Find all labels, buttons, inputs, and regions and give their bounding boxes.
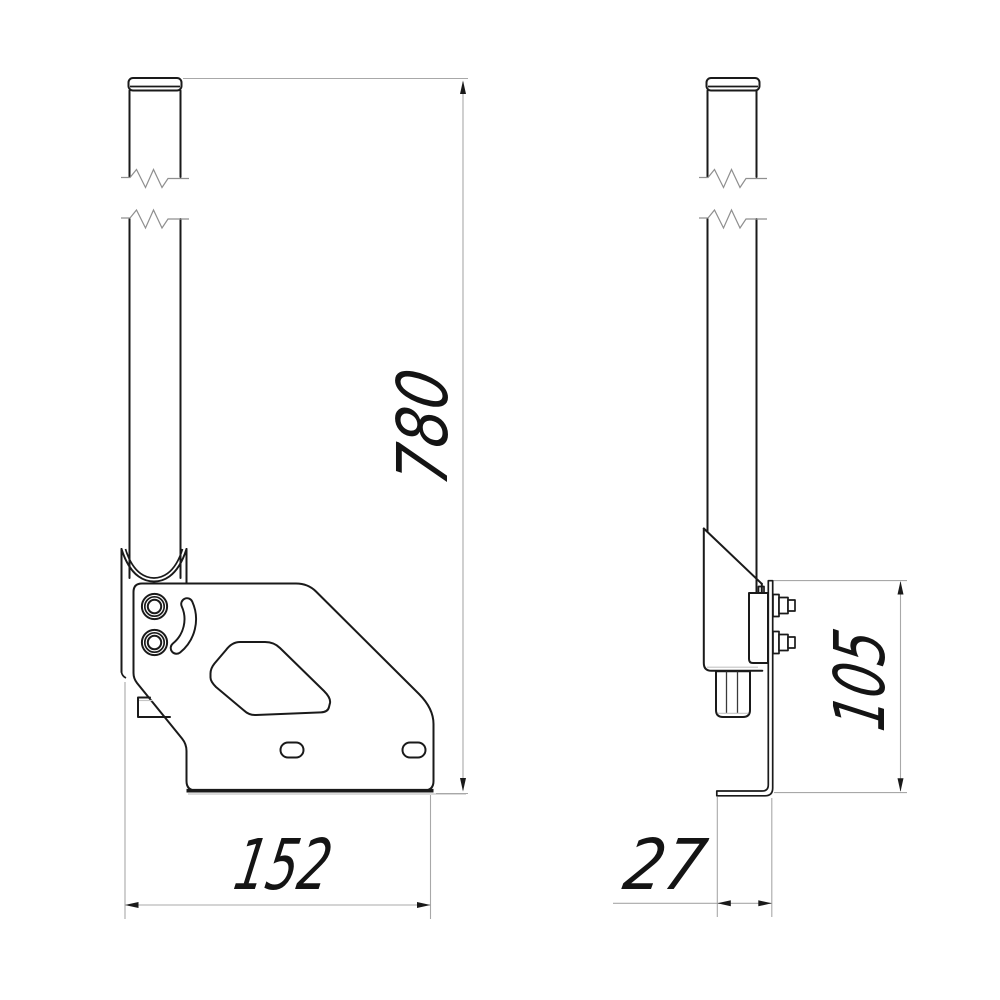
bolt-shaft-end <box>788 600 795 611</box>
arrow-left <box>717 900 731 906</box>
dimension-value-mast-height: 780 <box>382 363 463 490</box>
gusset-diagonal-edge <box>704 529 762 584</box>
bolt-shaft-end <box>788 637 795 648</box>
bolt-nut <box>779 598 788 614</box>
side-pole-break-lines <box>699 170 767 229</box>
side-pole-cap <box>707 78 760 91</box>
dimension-value-flange-depth: 27 <box>618 824 712 905</box>
bolt-washer <box>773 595 779 617</box>
arrow-up <box>460 81 466 95</box>
bracket-two-view-drawing: 780 152 <box>0 0 1000 1000</box>
technical-drawing-page: 780 152 <box>0 0 1000 1000</box>
arrow-right <box>758 900 772 906</box>
pole-end-block <box>716 671 750 717</box>
front-pole-cap <box>129 78 182 91</box>
dimension-value-base-width: 152 <box>229 824 338 905</box>
clamp-left-corner <box>122 672 127 678</box>
side-bolts <box>773 595 795 654</box>
arrow-down <box>460 778 466 792</box>
arrow-down <box>898 778 904 792</box>
side-view <box>699 78 795 796</box>
side-clamp-block <box>749 587 768 664</box>
front-plate-outline <box>134 584 434 791</box>
bolt-nut <box>779 635 788 651</box>
bolt-washer <box>773 632 779 654</box>
arrow-up <box>898 581 904 595</box>
arrow-left <box>125 902 139 908</box>
arrow-right <box>417 902 431 908</box>
dimension-value-plate-height: 105 <box>819 624 900 736</box>
dimension-flange-depth: 27 <box>613 797 772 917</box>
side-pole-end <box>716 671 750 717</box>
clamp-block <box>749 593 768 663</box>
dimension-plate-height: 105 <box>774 581 908 793</box>
side-pole-edges <box>708 91 757 594</box>
front-pole-fill <box>130 90 181 554</box>
